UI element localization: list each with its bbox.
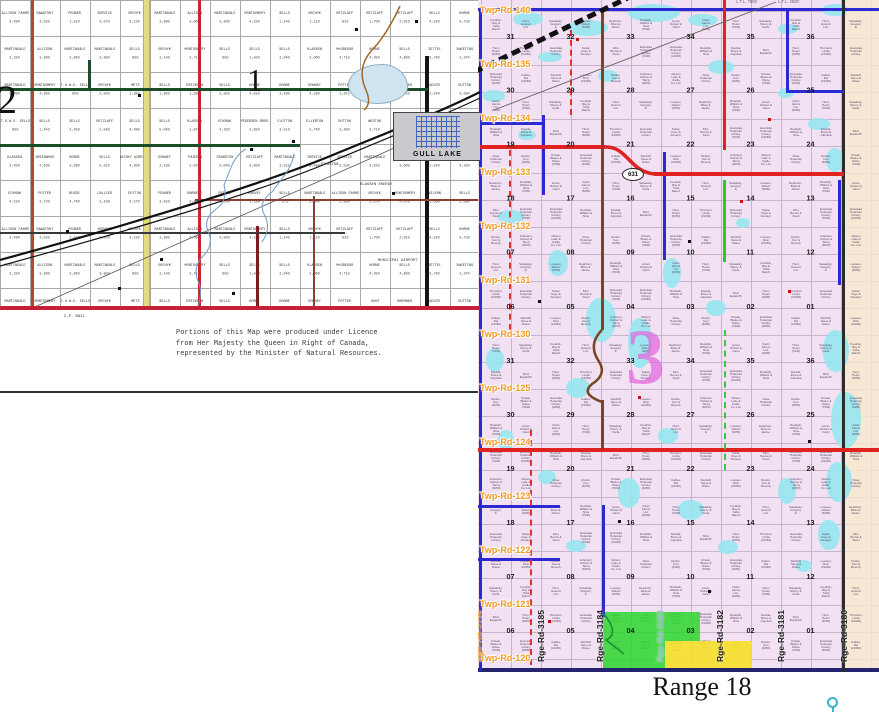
section-number: 09 xyxy=(626,248,634,256)
parcel-cell: DOWNEY2,190 xyxy=(150,144,180,180)
owner-cell: Dutton, Ken & Beverly xyxy=(751,470,781,497)
owner-cell: Suttar, Faye & Develyn xyxy=(751,200,781,227)
owner-cell: Rudolph, William & Nina (7930) xyxy=(811,173,841,200)
parcel-cell: SELLS1,140 xyxy=(270,216,300,252)
section-number: 03 xyxy=(686,302,694,310)
road-darkred xyxy=(256,226,259,310)
yard-site-red xyxy=(788,290,791,293)
owner-cell: Fielin Farms Ltd. (6250) xyxy=(751,335,781,362)
parcel-cell: RETZLAFF3,050 xyxy=(240,144,270,180)
section-number: 35 xyxy=(746,356,754,364)
parcel-cell: MARTINDALE3,320 xyxy=(0,252,30,288)
parcel-cell: ALLISON FARMS3,950 xyxy=(330,180,360,216)
section-number: 13 xyxy=(806,518,814,526)
town-label: GULL LAKE xyxy=(394,151,480,158)
rge-road-label: Rge-Rd-3182 xyxy=(715,550,725,662)
parcel-cell: SELLS5,040 xyxy=(150,108,180,144)
section-number: 26 xyxy=(746,410,754,418)
cp-rail-label: C.P. RAIL xyxy=(64,314,85,318)
owner-cell: Gibson Lake & Cattle Co. Ltd. xyxy=(841,227,871,254)
parcel-cell: SELLS2,040 xyxy=(270,252,300,288)
road-blue-v2 xyxy=(542,115,545,195)
trail-green-dashed xyxy=(724,330,726,470)
left-township-map[interactable]: ALLISON FARMS3,490SAWATSKY3,020PENNER1,5… xyxy=(0,0,480,310)
owner-cell: Callies, Del (21060) xyxy=(511,65,541,92)
owner-cell: Rose Hutterian Colony xyxy=(841,470,871,497)
parcel-cell: KLASSEN1,870 xyxy=(180,108,210,144)
rge-road-label: Rge-Rd-3183 xyxy=(655,550,665,662)
section-number: 29 xyxy=(566,410,574,418)
parcel-cell: ECKMAN4,320 xyxy=(210,108,240,144)
owner-cell: Kirwan, Blaine & Diane (7930) xyxy=(601,470,631,497)
highlight-yellow xyxy=(665,641,752,669)
owner-cell: Loran, Robert & Carol xyxy=(841,173,871,200)
owner-cell: Sawatsky, Sherry & Carla xyxy=(601,416,631,443)
owner-cell: Fielin Farms Ltd. (6250) xyxy=(631,497,661,524)
owner-cell: Johnston, Robert & Tanny (6250) xyxy=(781,470,811,497)
owner-cell: Fielin Farms Ltd. (6250) xyxy=(541,416,571,443)
owner-cell: Johnston, Robert & Tanny (6250) xyxy=(811,227,841,254)
owner-cell: Retzlaff, Steve & Diane xyxy=(691,470,721,497)
owner-cell: Hunt, Everett Ltd. xyxy=(811,11,841,38)
twp-road-label: Twp-Rd-122 xyxy=(480,545,530,555)
owner-cell: Thornton, Linda (21060) xyxy=(751,524,781,551)
owner-cell: Dearborn, Brian & Janine xyxy=(571,254,601,281)
parcel-cell: MARTINDALE3,980 xyxy=(150,0,180,36)
owner-cell: Callies, Del (21060) xyxy=(691,227,721,254)
parcel-cell: McGREGOR4,710 xyxy=(330,36,360,72)
owner-cell: Diedda, Bruce & Capriela xyxy=(601,200,631,227)
parcel-cell: GREENWOOD4,630 xyxy=(30,144,60,180)
parcel-cell: SWEETING2,370 xyxy=(450,252,480,288)
parcel-cell: ALLISON3,060 xyxy=(180,0,210,36)
road-red xyxy=(198,0,201,310)
owner-cell: Dutton, Ken (6250) xyxy=(691,308,721,335)
owner-cell: Loewen, Robert (6250) xyxy=(661,92,691,119)
owner-cell: Callies, Del (21060) xyxy=(661,470,691,497)
map-south-border-red xyxy=(0,306,480,310)
highway-number: 631 xyxy=(628,172,638,178)
road-maroon xyxy=(313,196,315,310)
owner-cell: Retzlaff, Steve & Diane xyxy=(811,308,841,335)
owner-cell: Thornton, Linda (21060) xyxy=(811,38,841,65)
pin-stem xyxy=(832,707,834,712)
section-number: 17 xyxy=(566,194,574,202)
owner-cell: Rose Hutterian Colony xyxy=(541,470,571,497)
farmstead-black xyxy=(250,148,253,151)
owner-cell: Retzlaff, Steve & Diane xyxy=(841,65,871,92)
road-red-v xyxy=(723,0,726,150)
owner-cell: Shirl, Espald B. xyxy=(811,362,841,389)
owner-cell: Evaniska Hutterian Colony (6250) xyxy=(811,632,841,659)
owner-cell: Hunt, Helen (6250) xyxy=(541,362,571,389)
label-municipal-airport: MUNICIPAL AIRPORT xyxy=(378,258,417,262)
owner-cell: Rudolph, William & Nina (7930) xyxy=(781,416,811,443)
owner-cell: Evaniska Hutterian Colony (21060) xyxy=(751,119,781,146)
owner-cell: Hunt, Everett Ltd. xyxy=(661,416,691,443)
section-number: 22 xyxy=(686,140,694,148)
licence-line-2: from Her Majesty the Queen in Right of C… xyxy=(176,339,382,350)
road-blue-h1 xyxy=(786,90,844,93)
section-number: 14 xyxy=(746,194,754,202)
farmstead-black xyxy=(808,440,811,443)
section-number: 21 xyxy=(626,464,634,472)
owner-cell: Loewen, Dion (21060) xyxy=(751,227,781,254)
owner-cell: Fielin Farms Ltd. (6250) xyxy=(841,416,871,443)
owner-cell: Evaniska Hutterian Colony (7930) xyxy=(571,524,601,551)
parcel-cell: MARTINDALE3,860 xyxy=(60,252,90,288)
parcel-cell: KLASSEN3,060 xyxy=(300,252,330,288)
owner-cell: Rudolph, William & Nina xyxy=(571,200,601,227)
owner-cell: Kirwan, Blaine & Diane (7930) xyxy=(841,146,871,173)
section-number: 30 xyxy=(506,86,514,94)
yard-site-red xyxy=(638,396,641,399)
road-black-thick xyxy=(425,56,429,310)
section-number: 28 xyxy=(626,410,634,418)
section-number: 20 xyxy=(566,464,574,472)
parcel-cell: SELLS875 xyxy=(270,180,300,216)
parcel-cell: BUSSE4,740 xyxy=(60,180,90,216)
twp-road-label: Twp-Rd-131 xyxy=(480,275,530,285)
owner-cell: Sawatsky, Gregory & xyxy=(691,416,721,443)
township-number-2: 2 xyxy=(0,76,17,123)
owner-cell: Klim, Bernie & Pearl xyxy=(781,200,811,227)
owner-cell: Loran, Robert & Carol xyxy=(811,416,841,443)
section-number: 22 xyxy=(686,464,694,472)
owner-cell: Evaniska Hutterian Colony xyxy=(541,38,571,65)
farmstead-black xyxy=(138,94,141,97)
owner-cell: Hunt, Helen (7930) xyxy=(571,416,601,443)
twp-road-label: Twp-Rd-125 xyxy=(480,383,530,393)
owner-cell: Evaniska Hutterian Colony (6250) xyxy=(841,389,871,416)
parcel-cell: SELLS1,503 xyxy=(240,252,270,288)
parcel-cell: ALLISON FARMS3,490 xyxy=(0,216,30,252)
owner-cell: Klim, Bernie & Pearl xyxy=(541,524,571,551)
south-border xyxy=(478,668,879,672)
section-number: 02 xyxy=(746,626,754,634)
right-township-map[interactable]: Fredrick, Ray & Twila RanchHunt, Everett… xyxy=(478,0,879,672)
section-number: 36 xyxy=(806,356,814,364)
parcel-cell: FRIESE4,060 xyxy=(210,180,240,216)
owner-cell: Rudolph, William & Nina (7930) xyxy=(691,335,721,362)
owner-cell: Evaniska Hutterian Colony (21060) xyxy=(841,200,871,227)
owner-cell: Shirl, Espald B. xyxy=(691,524,721,551)
owner-cell: Suttar, Faye & Develyn xyxy=(571,38,601,65)
owner-cell: Fredrick, Ray & Twila Ranch xyxy=(841,335,871,362)
farmstead-black xyxy=(618,520,621,523)
parcel-cell: SELLS850 xyxy=(210,36,240,72)
location-pin-icon[interactable] xyxy=(827,697,838,708)
section-number: 33 xyxy=(626,32,634,40)
section-number: 01 xyxy=(806,302,814,310)
section-number: 04 xyxy=(626,302,634,310)
parcel-cell: THUESON2,630 xyxy=(180,144,210,180)
owner-cell: Shirl, Espald B. xyxy=(841,119,871,146)
parcel-cell: ALLISON3,060 xyxy=(180,216,210,252)
road-blue-v3 xyxy=(663,152,666,260)
twp-road-label: Twp-Rd-121 xyxy=(480,599,530,609)
owner-cell: Rudolph, William & Nina xyxy=(751,362,781,389)
section-number: 18 xyxy=(506,518,514,526)
section-number: 10 xyxy=(686,572,694,580)
farmstead-black xyxy=(160,258,163,261)
parcel-cell: MARTINDALE3,930 xyxy=(210,216,240,252)
owner-cell: Evaniska Hutterian Colony (21060) xyxy=(631,281,661,308)
top-edge-label: L.T.L. 7800 xyxy=(736,0,757,4)
parcel-cell: SWEETING2,370 xyxy=(450,36,480,72)
owner-cell: Loewen, Robert (6250) xyxy=(571,11,601,38)
road-green-short xyxy=(88,60,91,90)
owner-cell: Loewen, Dion (21060) xyxy=(811,551,841,578)
owner-cell: Callies, Del (21060) xyxy=(571,389,601,416)
owner-cell: Loewen, Robert (6250) xyxy=(541,254,571,281)
road-maroon-h xyxy=(195,199,480,201)
owner-cell: Rudolph, William & Nina (7930) xyxy=(631,11,661,38)
parcel-cell: RETZLAFF2,010 xyxy=(390,0,420,36)
section-number: 23 xyxy=(746,464,754,472)
parcel-cell: ALLISON3,380 xyxy=(30,252,60,288)
owner-cell: Evaniska Hutterian Colony (6250) xyxy=(631,470,661,497)
section-number: 06 xyxy=(506,302,514,310)
parcel-cell: SELLS3,580 xyxy=(450,180,480,216)
owner-cell: Gibson Lake & Cattle Co. Ltd. xyxy=(751,146,781,173)
owner-cell: Dutton, Ken & Beverly xyxy=(691,146,721,173)
owner-cell: Fredrick, Ray & Twila Ranch xyxy=(811,578,841,605)
licence-line-1: Portions of this Map were produced under… xyxy=(176,328,382,339)
owner-cell: Loran, Robert & Carol xyxy=(631,254,661,281)
parcel-cell: SAWATSKY3,020 xyxy=(30,0,60,36)
owner-cell: Rudolph, William & Nina (7930) xyxy=(661,578,691,605)
section-number: 05 xyxy=(566,626,574,634)
owner-cell: Kirwan, Blaine & Diane (7930) xyxy=(751,65,781,92)
parcel-cell: POTTER3,720 xyxy=(30,180,60,216)
owner-cell: Rose Hutterian Colony xyxy=(571,227,601,254)
section-number: 08 xyxy=(566,248,574,256)
owner-cell: Klim, Bernie & Pearl xyxy=(571,281,601,308)
parcel-cell: ALLISON FARMS3,490 xyxy=(0,0,30,36)
owner-cell: Diedda, Bruce & Capriela xyxy=(691,281,721,308)
section-number: 07 xyxy=(506,248,514,256)
owner-cell: Evaniska Hutterian Colony xyxy=(841,38,871,65)
owner-cell: Hunt, Everett Ltd. xyxy=(571,335,601,362)
farmstead-black xyxy=(688,240,691,243)
owner-cell: Shirl, Espald B. xyxy=(751,38,781,65)
owner-cell: Hunt, Helen (6250) xyxy=(571,119,601,146)
horizontal-divider-line xyxy=(0,391,479,393)
owner-cell: Diedda, Bruce & Capriela xyxy=(781,362,811,389)
section-number: 01 xyxy=(806,626,814,634)
section-number: 24 xyxy=(806,140,814,148)
road-yellow xyxy=(143,0,150,310)
section-number: 35 xyxy=(746,32,754,40)
section-number: 15 xyxy=(686,194,694,202)
section-number: 06 xyxy=(506,626,514,634)
owner-cell: Kirwan, Blaine & Diane (7930) xyxy=(811,389,841,416)
road-blue-h3 xyxy=(478,505,560,508)
section-number: 23 xyxy=(746,140,754,148)
rge-road-label: Rge-Rd-3184 xyxy=(595,550,605,662)
section-number: 31 xyxy=(506,356,514,364)
gull-lake-town: GULL LAKE xyxy=(393,112,480,161)
owner-cell: Johnston, Robert & Tanny (6250) xyxy=(511,227,541,254)
owner-cell: Fredrick, Ray & Twila Ranch xyxy=(631,416,661,443)
parcel-cell: ELLERTON5,740 xyxy=(300,108,330,144)
owner-cell: Hunt, Helen (6250) xyxy=(841,362,871,389)
owner-cell: Loewen, Robert (6250) xyxy=(511,497,541,524)
twp-road-label: Twp-Rd-133 xyxy=(480,167,530,177)
owner-cell: Hunt, Everett Ltd. xyxy=(781,254,811,281)
road-brown-v xyxy=(601,12,604,330)
farmstead-black xyxy=(708,590,711,593)
range-caption: Range 18 xyxy=(592,672,812,702)
top-edge-label: L.T.L. 2500 xyxy=(778,0,799,4)
owner-cell: Fredrick, Ray & Twila Ranch xyxy=(751,254,781,281)
owner-cell: Sawatsky, Sherry & Carla xyxy=(691,497,721,524)
gull-lake-waterbody xyxy=(348,64,408,104)
parcel-cell: MONTGOMERY4,670 xyxy=(390,180,420,216)
parcel-cell: SELLS4,520 xyxy=(420,0,450,36)
section-number: 11 xyxy=(746,248,754,256)
section-number: 25 xyxy=(806,86,814,94)
owner-cell: Loewen, Dion (21060) xyxy=(571,65,601,92)
section-number: 31 xyxy=(506,32,514,40)
owner-cell: Sawatsky, Gregory & xyxy=(631,92,661,119)
owner-cell: Sawatsky, Sherry & Carla xyxy=(541,92,571,119)
section-number: 09 xyxy=(626,572,634,580)
owner-cell: Johnston, Robert & Tanny (6250) xyxy=(721,146,751,173)
parcel-cell: CRANSTON3,040 xyxy=(210,144,240,180)
parcel-cell: BARNETT3,040 xyxy=(180,180,210,216)
parcel-cell: HORNE3,380 xyxy=(60,144,90,180)
parcel-cell: MARTINDALE3,510 xyxy=(270,144,300,180)
parcel-cell: CLUTTON3,510 xyxy=(270,108,300,144)
road-blue-v1 xyxy=(786,8,789,90)
parcel-cell: RETZLAFF833 xyxy=(330,216,360,252)
owner-cell: Loewen, Robert (6250) xyxy=(751,173,781,200)
licence-note: Portions of this Map were produced under… xyxy=(176,328,382,360)
section-number: 08 xyxy=(566,572,574,580)
owner-cell: Dutton, Ken & Beverly xyxy=(571,308,601,335)
parcel-cell: HARVEY3,390 xyxy=(240,180,270,216)
section-number: 12 xyxy=(806,572,814,580)
yard-site-red xyxy=(548,620,551,623)
owner-cell: Kirwan, Blaine & Diane (7930) xyxy=(631,227,661,254)
twp-road-label: Twp-Rd-135 xyxy=(480,59,530,69)
section-number: 02 xyxy=(746,302,754,310)
township-number-1: 1 xyxy=(247,62,263,99)
parcel-cell: RETZLAFF2,010 xyxy=(390,216,420,252)
parcel-cell: SELLS2,040 xyxy=(270,36,300,72)
owner-cell: Dutton, Ken (6250) xyxy=(811,146,841,173)
owner-cell: Evaniska Hutterian Colony (6250) xyxy=(751,308,781,335)
owner-cell: Sawatsky, Gregory & xyxy=(841,11,871,38)
owner-cell: Rose Hutterian Colony xyxy=(691,65,721,92)
parcel-cell: MONTGOMERY3,710 xyxy=(180,36,210,72)
parcel-cell: MARTINDALE3,320 xyxy=(0,36,30,72)
farmstead-black xyxy=(392,192,395,195)
parcel-cell: ALLISON3,380 xyxy=(30,36,60,72)
section-number: 27 xyxy=(686,410,694,418)
trail-red-dashed-3 xyxy=(570,30,572,115)
owner-cell: Klim, Bernie & Pearl xyxy=(661,362,691,389)
owner-cell: Evaniska Hutterian Colony xyxy=(781,524,811,551)
rge-road-label: Rge-Rd-3185 xyxy=(536,550,546,662)
parcel-cell: KLASSEN3,450 xyxy=(0,144,30,180)
owner-cell: Thornton, Linda (21060) xyxy=(571,362,601,389)
parcel-cell: MARTINDALE3,860 xyxy=(60,36,90,72)
owner-cell: Evaniska Hutterian Colony (21060) xyxy=(541,200,571,227)
parcel-cell: MONTGOMERY4,320 xyxy=(240,0,270,36)
parcel-cell: McGREGOR4,710 xyxy=(330,252,360,288)
owner-cell: Evaniska Hutterian Colony xyxy=(511,281,541,308)
section-number: 20 xyxy=(566,140,574,148)
section-number: 13 xyxy=(806,194,814,202)
section-number: 07 xyxy=(506,572,514,580)
owner-cell: Loewen, Robert (6250) xyxy=(601,578,631,605)
section-number: 26 xyxy=(746,86,754,94)
owner-cell: Fielin Farms Ltd. (6250) xyxy=(691,11,721,38)
parcel-cell: ORCHYK3,140 xyxy=(150,36,180,72)
owner-cell: Callies, Del (21060) xyxy=(781,308,811,335)
section-number: 18 xyxy=(506,194,514,202)
rge-road-west-label: Rge-Rd-3190 xyxy=(478,550,484,662)
label-johnston: JOHNSTON xyxy=(320,162,338,166)
owner-cell: Callies, Del (21060) xyxy=(811,65,841,92)
parcel-cell: ORCHYK1,110 xyxy=(300,0,330,36)
highway-red-h1 xyxy=(478,145,606,149)
twp-road-label: Twp-Rd-130 xyxy=(480,329,530,339)
section-number: 25 xyxy=(806,410,814,418)
owner-cell: Diedda, Bruce & Capriela xyxy=(661,524,691,551)
parcel-cell: SERVICE3,570 xyxy=(90,216,120,252)
section-number: 16 xyxy=(626,194,634,202)
map-page: ALLISON FARMS3,490SAWATSKY3,020PENNER1,5… xyxy=(0,0,879,720)
owner-cell: Evaniska Hutterian Colony (21060) xyxy=(661,38,691,65)
parcel-cell: SELLS2,450 xyxy=(60,108,90,144)
parcel-cell: DUTTON3,450 xyxy=(330,108,360,144)
owner-cell: Sawatsky, Sherry & Carla xyxy=(841,92,871,119)
section-number: 30 xyxy=(506,410,514,418)
township-number-3: 3 xyxy=(626,318,665,396)
owner-cell: Loewen, Dion (21060) xyxy=(541,308,571,335)
parcel-cell: SERVICE3,570 xyxy=(90,0,120,36)
section-number: 15 xyxy=(686,518,694,526)
parcel-cell: MARTINDALE3,930 xyxy=(210,0,240,36)
owner-cell: Rudolph, William & Nina (7930) xyxy=(601,254,631,281)
parcel-cell: MONTGOMERY3,710 xyxy=(180,252,210,288)
parcel-cell: RETZLAFF1,700 xyxy=(360,0,390,36)
parcel-cell: DUTTON3,580 xyxy=(450,72,480,108)
owner-cell: Evaniska Hutterian Colony xyxy=(631,119,661,146)
road-green-v xyxy=(723,180,726,262)
parcel-cell: WESTON3,710 xyxy=(360,108,390,144)
highway-red-h2 xyxy=(654,172,844,176)
section-number: 11 xyxy=(746,572,754,580)
section-number: 34 xyxy=(686,32,694,40)
rge-road-label: Rge-Rd-3181 xyxy=(776,550,786,662)
owner-cell: Evaniska Hutterian Colony (6250) xyxy=(571,146,601,173)
owner-cell: Sawatsky, Gregory & xyxy=(811,254,841,281)
road-green-h2 xyxy=(0,144,300,147)
owner-cell: Klim, Bernie & Pearl xyxy=(601,38,631,65)
parcel-cell: PEDERSEN BROS.2,850 xyxy=(240,108,270,144)
parcel-cell: MONTGOMERY4,320 xyxy=(240,216,270,252)
parcel-cell: RETZLAFF2,540 xyxy=(90,108,120,144)
owner-cell: Evaniska Hutterian Colony (7930) xyxy=(631,38,661,65)
owner-cell: Hunt, Helen (7930) xyxy=(811,92,841,119)
parcel-cell: SELLS850 xyxy=(210,252,240,288)
owner-cell: Johnston, Robert & Tanny (6250) xyxy=(691,389,721,416)
